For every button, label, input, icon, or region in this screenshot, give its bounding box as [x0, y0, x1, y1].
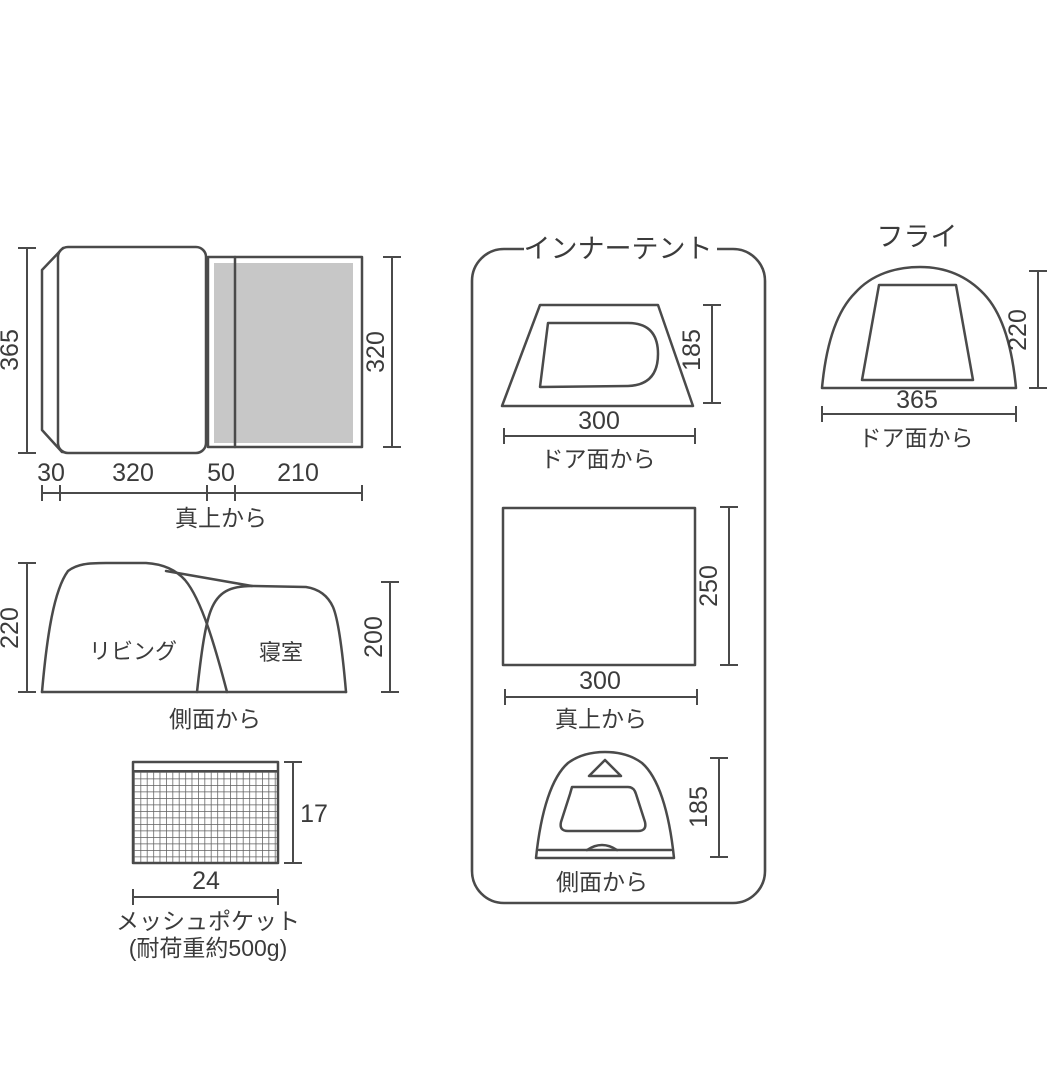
- mesh-pocket-caption: メッシュポケット: [116, 908, 300, 934]
- dim-label-185-door: 185: [678, 329, 706, 371]
- inner-side-outline: [536, 752, 674, 858]
- fly-view-caption: ドア面から: [859, 425, 974, 451]
- inner-door-view-caption: ドア面から: [541, 446, 656, 472]
- dim-label-185-side: 185: [685, 786, 713, 828]
- dim-label-220: 220: [0, 607, 24, 649]
- dim-label-220-fly: 220: [1004, 309, 1032, 351]
- overall-side-view: リビング 寝室 220 200 側面から: [0, 563, 399, 732]
- mesh-pocket-note: (耐荷重約500g): [129, 935, 287, 961]
- dim-label-200: 200: [360, 616, 388, 658]
- fly-ridge-line: [166, 571, 252, 586]
- overall-top-view: 365 320 30 320 50 210 真上から: [0, 247, 401, 531]
- dim-label-210: 210: [277, 459, 319, 487]
- dim-label-24: 24: [192, 867, 220, 895]
- inner-door-face-outline: [502, 305, 693, 406]
- dim-label-365-fly: 365: [896, 386, 938, 414]
- dim-line-bottom-widths: [42, 485, 362, 501]
- fly-title: フライ: [877, 222, 958, 252]
- dim-label-320: 320: [362, 331, 390, 373]
- dim-label-300-door: 300: [578, 407, 620, 435]
- living-room-label: リビング: [89, 639, 177, 664]
- fly-view: フライ 220 365 ドア面から: [822, 222, 1047, 451]
- top-view-caption: 真上から: [175, 505, 267, 531]
- side-view-caption: 側面から: [169, 706, 261, 732]
- tent-spec-sheet: 365 320 30 320 50 210 真上から リビング 寝室 220 2…: [0, 0, 1050, 1080]
- dim-label-50: 50: [207, 459, 235, 487]
- living-area-outline: [58, 247, 206, 453]
- diagram-canvas: 365 320 30 320 50 210 真上から リビング 寝室 220 2…: [0, 0, 1050, 1080]
- dim-label-365: 365: [0, 329, 24, 371]
- dim-label-250: 250: [695, 565, 723, 607]
- inner-tent-title: インナーテント: [524, 234, 713, 264]
- bedroom-dome-outline: [197, 586, 346, 692]
- inner-top-view-caption: 真上から: [555, 706, 647, 732]
- dim-label-300-top: 300: [579, 667, 621, 695]
- inner-floor-outline: [503, 508, 695, 665]
- inner-side-view-caption: 側面から: [556, 869, 648, 895]
- inner-tent-door-view: 185 300 ドア面から: [502, 305, 721, 472]
- inner-tent-panel: インナーテント 185 300 ドア面から 250 300 真上から: [472, 234, 765, 903]
- bedroom-label: 寝室: [259, 640, 303, 665]
- dim-label-17: 17: [300, 800, 328, 828]
- mesh-pocket: 17 24 メッシュポケット (耐荷重約500g): [116, 762, 328, 961]
- mesh-grid: [134, 772, 277, 862]
- inner-tent-side-view: 185 側面から: [536, 752, 728, 895]
- dim-label-320b: 320: [112, 459, 154, 487]
- inner-tent-top-view: 250 300 真上から: [503, 507, 738, 732]
- dim-label-30: 30: [37, 459, 65, 487]
